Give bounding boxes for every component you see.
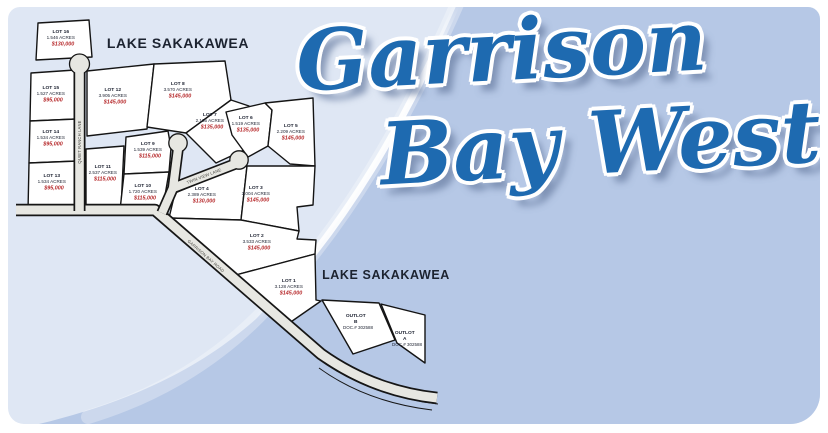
lot-16-parcel <box>36 20 92 60</box>
lake-sakakawea-label-middle: LAKE SAKAKAWEA <box>322 268 450 282</box>
lake-sakakawea-label-top: LAKE SAKAKAWEA <box>107 35 249 51</box>
plat-map-svg: LAKE SAKAKAWEA LAKE SAKAKAWEA QUIET RANC… <box>8 7 820 424</box>
quiet-ranch-lane-label: QUIET RANCH LANE <box>77 120 82 163</box>
photo-white-frame: LAKE SAKAKAWEA LAKE SAKAKAWEA QUIET RANC… <box>0 0 828 433</box>
plat-map-canvas: LAKE SAKAKAWEA LAKE SAKAKAWEA QUIET RANC… <box>8 7 820 424</box>
